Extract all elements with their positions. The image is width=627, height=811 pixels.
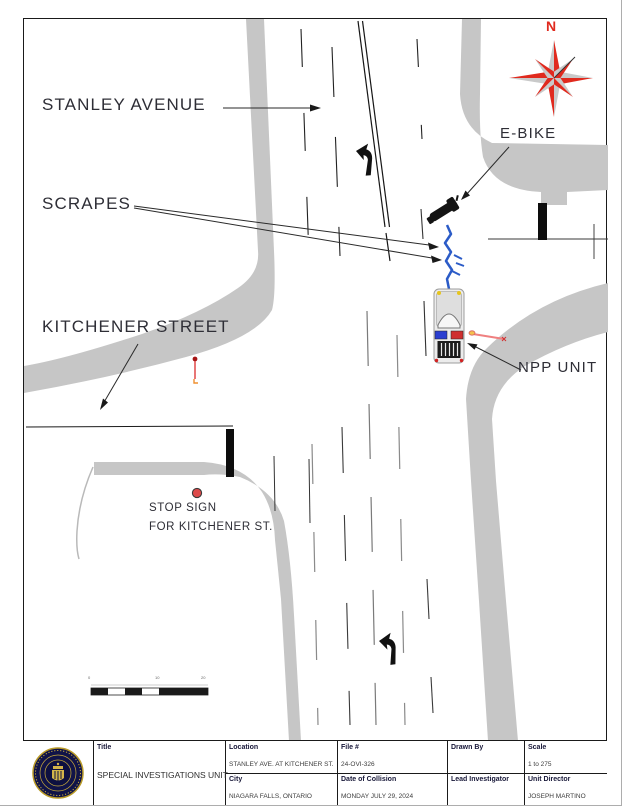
field-scale-label: Scale [528, 744, 546, 751]
sign-pole-marker [193, 357, 198, 383]
scale-bar [91, 685, 208, 695]
page-edge-bottom [0, 805, 622, 806]
label-stop-sign-line1: STOP SIGN [149, 502, 217, 514]
centre-line-1 [358, 21, 385, 227]
property-corner-hairline [77, 467, 93, 559]
label-north: N [546, 18, 556, 34]
pavement-arrow-north [353, 142, 375, 176]
title-block-row-divider [225, 773, 607, 774]
field-scale-value: 1 to 275 [528, 761, 552, 768]
lightbar-blue [435, 331, 447, 339]
sidestreet-stop-bar [538, 203, 547, 240]
field-drawn-by-label: Drawn By [451, 744, 483, 751]
field-location-value: STANLEY AVE. AT KITCHENER ST. [229, 761, 334, 768]
ebike-icon [424, 194, 464, 227]
field-city-value: NIAGARA FALLS, ONTARIO [229, 793, 312, 800]
siu-seal-logo [23, 741, 93, 805]
field-lead-investigator-label: Lead Investigator [451, 776, 509, 783]
npp-vehicle-icon [434, 289, 464, 363]
field-city-label: City [229, 776, 242, 783]
ebike-path [445, 225, 464, 289]
stanley-east-south-curb [466, 283, 608, 741]
label-ebike: E-BIKE [500, 125, 556, 142]
kitchener-edge-line [26, 426, 233, 427]
label-scrapes: SCRAPES [42, 194, 131, 214]
label-stanley-avenue: STANLEY AVENUE [42, 95, 206, 115]
lightbar-red [451, 331, 463, 339]
field-file-label: File # [341, 744, 359, 751]
label-kitchener-street: KITCHENER STREET [42, 317, 230, 337]
field-unit-director-label: Unit Director [528, 776, 570, 783]
pavement-arrow-south [377, 632, 397, 665]
field-file-value: 24-OVI-326 [341, 761, 375, 768]
field-title-label: Title [97, 744, 111, 751]
field-location-label: Location [229, 744, 258, 751]
title-block-divider [93, 741, 94, 805]
compass-rose-icon [509, 40, 593, 117]
label-stop-sign-line2: FOR KITCHENER ST. [149, 521, 273, 533]
title-block: Title SPECIAL INVESTIGATIONS UNIT Locati… [23, 740, 607, 804]
field-unit-director-value: JOSEPH MARTINO [528, 793, 586, 800]
field-title-value: SPECIAL INVESTIGATIONS UNIT [97, 770, 228, 780]
scale-tick-2: 20 [201, 675, 205, 680]
label-npp-unit: NPP UNIT [518, 359, 597, 376]
stop-sign-symbol [192, 488, 201, 497]
page-edge-right [621, 0, 622, 806]
siu-collision-diagram-page: { "drawing": { "annotations": { "north":… [0, 0, 627, 811]
scale-tick-1: 10 [155, 675, 159, 680]
centre-line-2 [363, 21, 390, 227]
kitchener-stop-bar [226, 429, 234, 477]
scale-tick-0: 0 [88, 675, 90, 680]
field-date-value: MONDAY JULY 29, 2024 [341, 793, 413, 800]
field-date-label: Date of Collision [341, 776, 396, 783]
